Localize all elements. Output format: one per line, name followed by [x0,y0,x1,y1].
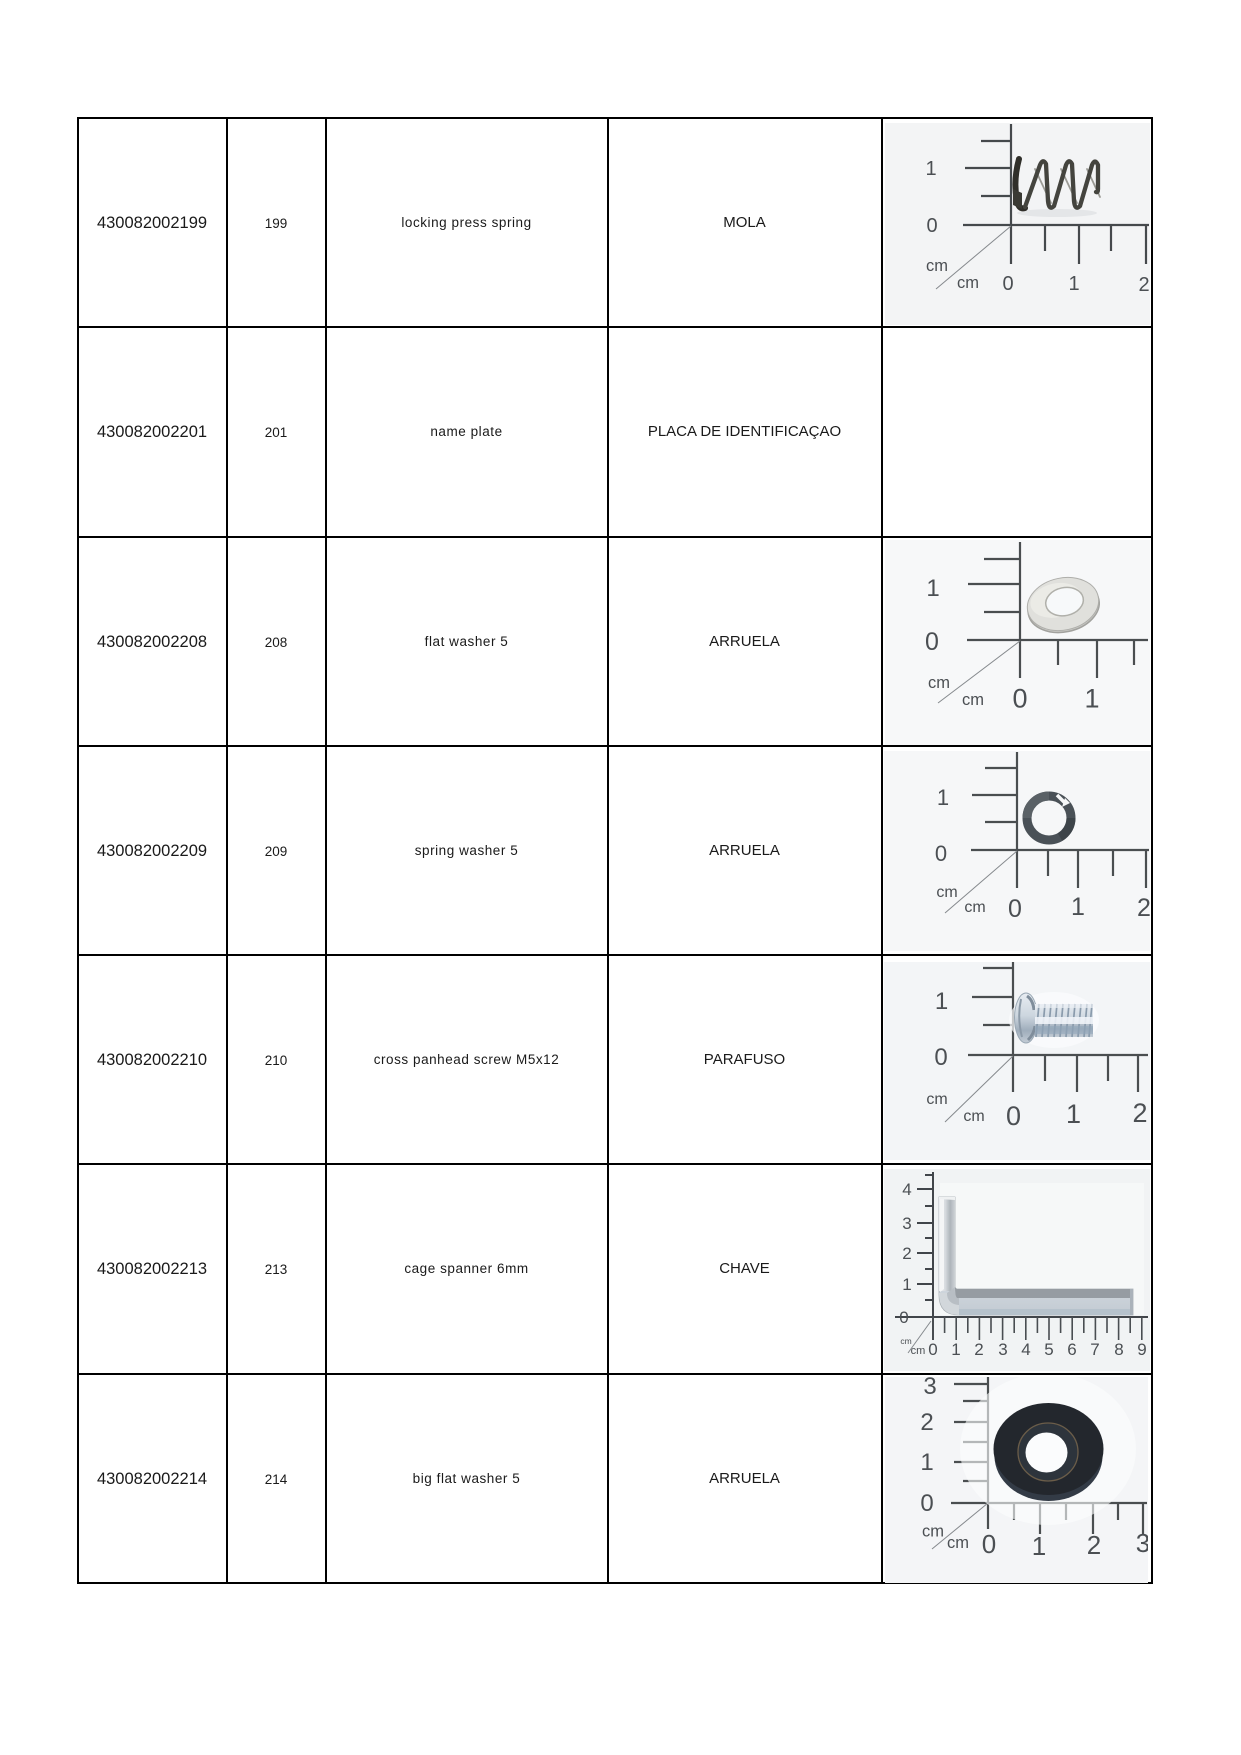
svg-text:0: 0 [899,1308,908,1327]
svg-text:6: 6 [1067,1340,1076,1359]
svg-text:3: 3 [923,1377,936,1400]
svg-text:4: 4 [902,1180,911,1199]
svg-text:1: 1 [1068,273,1079,295]
svg-text:0: 0 [1002,273,1013,295]
svg-text:0: 0 [925,628,939,656]
svg-text:0: 0 [1008,895,1022,923]
svg-text:cm: cm [926,257,948,275]
svg-text:cm: cm [922,1523,944,1541]
svg-text:1: 1 [920,1449,933,1476]
svg-text:0: 0 [982,1529,996,1559]
svg-text:1: 1 [925,158,936,180]
svg-text:cm: cm [963,1108,984,1125]
svg-text:cm: cm [964,899,985,916]
svg-text:0: 0 [928,1340,937,1359]
svg-text:0: 0 [926,215,937,237]
svg-text:2: 2 [974,1340,983,1359]
svg-text:3: 3 [902,1214,911,1233]
svg-text:2: 2 [1138,274,1149,296]
svg-text:cm: cm [911,1345,926,1357]
svg-text:3: 3 [998,1340,1007,1359]
svg-text:1: 1 [935,988,948,1015]
svg-text:8: 8 [1114,1340,1123,1359]
svg-text:0: 0 [935,841,947,866]
svg-text:1: 1 [1071,893,1085,921]
svg-text:4: 4 [1021,1340,1030,1359]
svg-text:1: 1 [1066,1099,1081,1129]
svg-text:cm: cm [947,1534,969,1552]
svg-text:2: 2 [1087,1530,1101,1560]
svg-text:5: 5 [1044,1340,1053,1359]
svg-text:2: 2 [920,1409,933,1436]
svg-text:1: 1 [951,1340,960,1359]
svg-text:9: 9 [1137,1340,1146,1359]
svg-text:1: 1 [926,575,939,602]
svg-text:1: 1 [1084,684,1099,714]
svg-text:2: 2 [902,1244,911,1263]
svg-text:1: 1 [937,785,949,810]
svg-text:2: 2 [1137,894,1150,922]
svg-text:3: 3 [1136,1528,1148,1558]
svg-text:1: 1 [1032,1531,1046,1561]
svg-text:cm: cm [926,1091,947,1108]
svg-text:0: 0 [920,1490,933,1517]
svg-text:cm: cm [957,274,979,292]
svg-text:cm: cm [962,691,984,709]
svg-text:7: 7 [1090,1340,1099,1359]
svg-text:0: 0 [934,1044,947,1071]
svg-text:cm: cm [928,674,950,692]
svg-text:0: 0 [1012,684,1027,714]
svg-text:2: 2 [1132,1098,1147,1128]
svg-text:0: 0 [1006,1101,1021,1131]
svg-text:cm: cm [936,884,957,901]
svg-text:1: 1 [902,1275,911,1294]
